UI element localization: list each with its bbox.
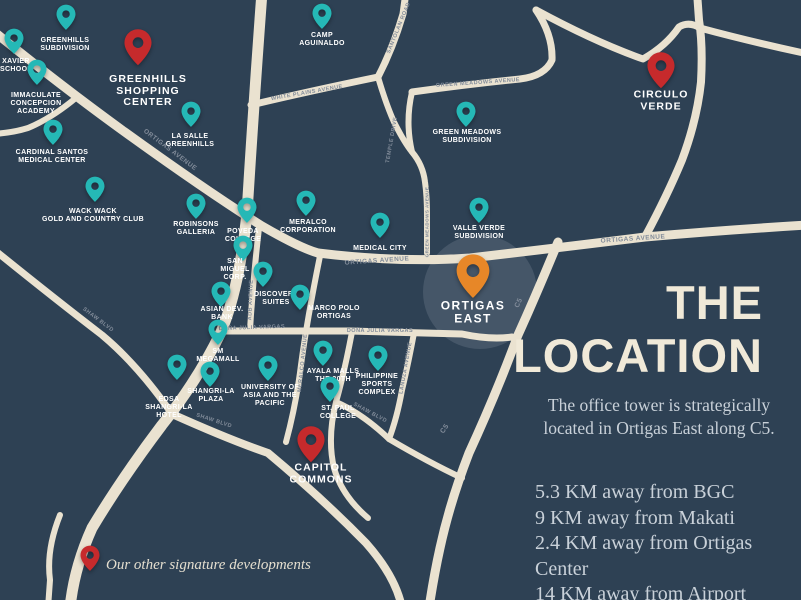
camp-aguinaldo-label: CAMP AGUINALDO: [299, 32, 345, 48]
legend-marker-pin[interactable]: [80, 545, 100, 577]
map-pin-icon: [258, 355, 278, 382]
meralco-corporation-pin[interactable]: [296, 190, 316, 222]
circulo-verde-label: CIRCULO VERDE: [634, 90, 689, 113]
la-salle-greenhills-label: LA SALLE GREENHILLS: [166, 133, 215, 149]
marco-polo-ortigas-pin[interactable]: [290, 284, 310, 316]
map-pin-icon: [200, 361, 220, 388]
edsa-shangri-la-hotel-label: EDSA SHANGRI-LA HOTEL: [145, 396, 192, 420]
immaculate-concepcion-academy-pin[interactable]: [27, 59, 47, 91]
marco-polo-ortigas-label: MARCO POLO ORTIGAS: [308, 305, 360, 321]
meralco-corporation-label: MERALCO CORPORATION: [280, 219, 336, 235]
map-pin-icon: [647, 52, 676, 90]
road-label-dona-julia-vargas-east: DOÑA JULIA VARGAS: [347, 328, 413, 334]
title-line-1: THE: [513, 276, 763, 329]
subtitle-line-1: The office tower is strategically: [528, 394, 790, 417]
philippine-sports-complex-label: PHILIPPINE SPORTS COMPLEX: [356, 373, 398, 397]
map-pin-icon: [296, 190, 316, 217]
medical-city-pin[interactable]: [370, 212, 390, 244]
distance-line: 14 KM away from Airport: [535, 582, 801, 600]
map-pin-icon: [312, 3, 332, 30]
ortigas-east-label: ORTIGAS EAST: [441, 300, 505, 325]
map-pin-icon: [80, 545, 100, 572]
distance-line: 2.4 KM away from Ortigas Center: [535, 531, 801, 582]
edsa-shangri-la-hotel-pin[interactable]: [167, 354, 187, 386]
wack-wack-golf-label: WACK WACK GOLD AND COUNTRY CLUB: [42, 208, 144, 224]
sm-megamall-pin[interactable]: [208, 319, 228, 351]
immaculate-concepcion-academy-label: IMMACULATE CONCEPCION ACADEMY: [11, 92, 62, 116]
subtitle-line-2: located in Ortigas East along C5.: [528, 417, 790, 440]
valle-verde-subdivision-label: VALLE VERDE SUBDIVISION: [453, 225, 505, 241]
university-asia-pacific-label: UNIVERSITY OF ASIA AND THE PACIFIC: [241, 384, 299, 408]
legend-text: Our other signature developments: [106, 557, 311, 574]
road-st-paul-connector: [331, 332, 368, 518]
st-paul-college-pin[interactable]: [320, 376, 340, 408]
ortigas-east-pin[interactable]: [456, 254, 491, 305]
map-canvas: ORTIGAS AVENUEORTIGAS AVENUEORTIGAS AVEN…: [0, 0, 801, 600]
map-pin-icon: [290, 284, 310, 311]
map-pin-icon: [368, 345, 388, 372]
road-bottom-left-wiggle: [48, 515, 60, 600]
road-green-meadows-left: [409, 92, 413, 152]
map-pin-icon: [4, 28, 24, 55]
distance-line: 9 KM away from Makati: [535, 506, 801, 532]
map-pin-icon: [43, 119, 63, 146]
map-pin-icon: [469, 197, 489, 224]
title-line-2: LOCATION: [513, 329, 763, 382]
map-pin-icon: [320, 376, 340, 403]
map-pin-icon: [124, 29, 153, 67]
distance-list: 5.3 KM away from BGC9 KM away from Makat…: [535, 480, 801, 600]
st-paul-college-label: ST. PAUL COLLEGE: [320, 405, 356, 421]
poveda-college-pin[interactable]: [237, 197, 257, 229]
cardinal-santos-medical-center-label: CARDINAL SANTOS MEDICAL CENTER: [16, 149, 89, 165]
university-asia-pacific-pin[interactable]: [258, 355, 278, 387]
road-label-green-meadows-avenue-vertical: GREEN MEADOWS AVENUE: [425, 187, 430, 258]
camp-aguinaldo-pin[interactable]: [312, 3, 332, 35]
map-pin-icon: [313, 340, 333, 367]
map-pin-icon: [186, 193, 206, 220]
medical-city-label: MEDICAL CITY: [353, 245, 407, 253]
shangri-la-plaza-label: SHANGRI-LA PLAZA: [187, 388, 234, 404]
road-shaw-west: [0, 248, 172, 414]
robinsons-galleria-label: ROBINSONS GALLERIA: [173, 221, 219, 237]
map-pin-icon: [27, 59, 47, 86]
map-pin-icon: [85, 176, 105, 203]
greenhills-subdivision-pin[interactable]: [56, 4, 76, 36]
xavier-school-pin[interactable]: [4, 28, 24, 60]
capitol-commons-label: CAPITOL COMMONS: [290, 463, 353, 486]
panel-title: THE LOCATION: [513, 276, 763, 382]
map-pin-icon: [456, 101, 476, 128]
map-pin-icon: [56, 4, 76, 31]
map-pin-icon: [167, 354, 187, 381]
greenhills-shopping-center-label: GREENHILLS SHOPPING CENTER: [109, 74, 187, 109]
map-pin-icon: [297, 426, 326, 464]
map-pin-icon: [211, 281, 231, 308]
san-miguel-corp-label: SAN MIGUEL CORP.: [220, 258, 249, 282]
greenhills-subdivision-label: GREENHILLS SUBDIVISION: [40, 37, 89, 53]
discovery-suites-pin[interactable]: [253, 261, 273, 293]
map-pin-icon: [456, 254, 491, 300]
map-pin-icon: [253, 261, 273, 288]
wack-wack-golf-pin[interactable]: [85, 176, 105, 208]
map-pin-icon: [237, 197, 257, 224]
distance-line: 5.3 KM away from BGC: [535, 480, 801, 506]
greenhills-shopping-center-pin[interactable]: [124, 29, 153, 72]
map-pin-icon: [208, 319, 228, 346]
map-pin-icon: [370, 212, 390, 239]
green-meadows-subdivision-label: GREEN MEADOWS SUBDIVISION: [433, 129, 502, 145]
cardinal-santos-medical-center-pin[interactable]: [43, 119, 63, 151]
panel-subtitle: The office tower is strategically locate…: [528, 394, 790, 440]
